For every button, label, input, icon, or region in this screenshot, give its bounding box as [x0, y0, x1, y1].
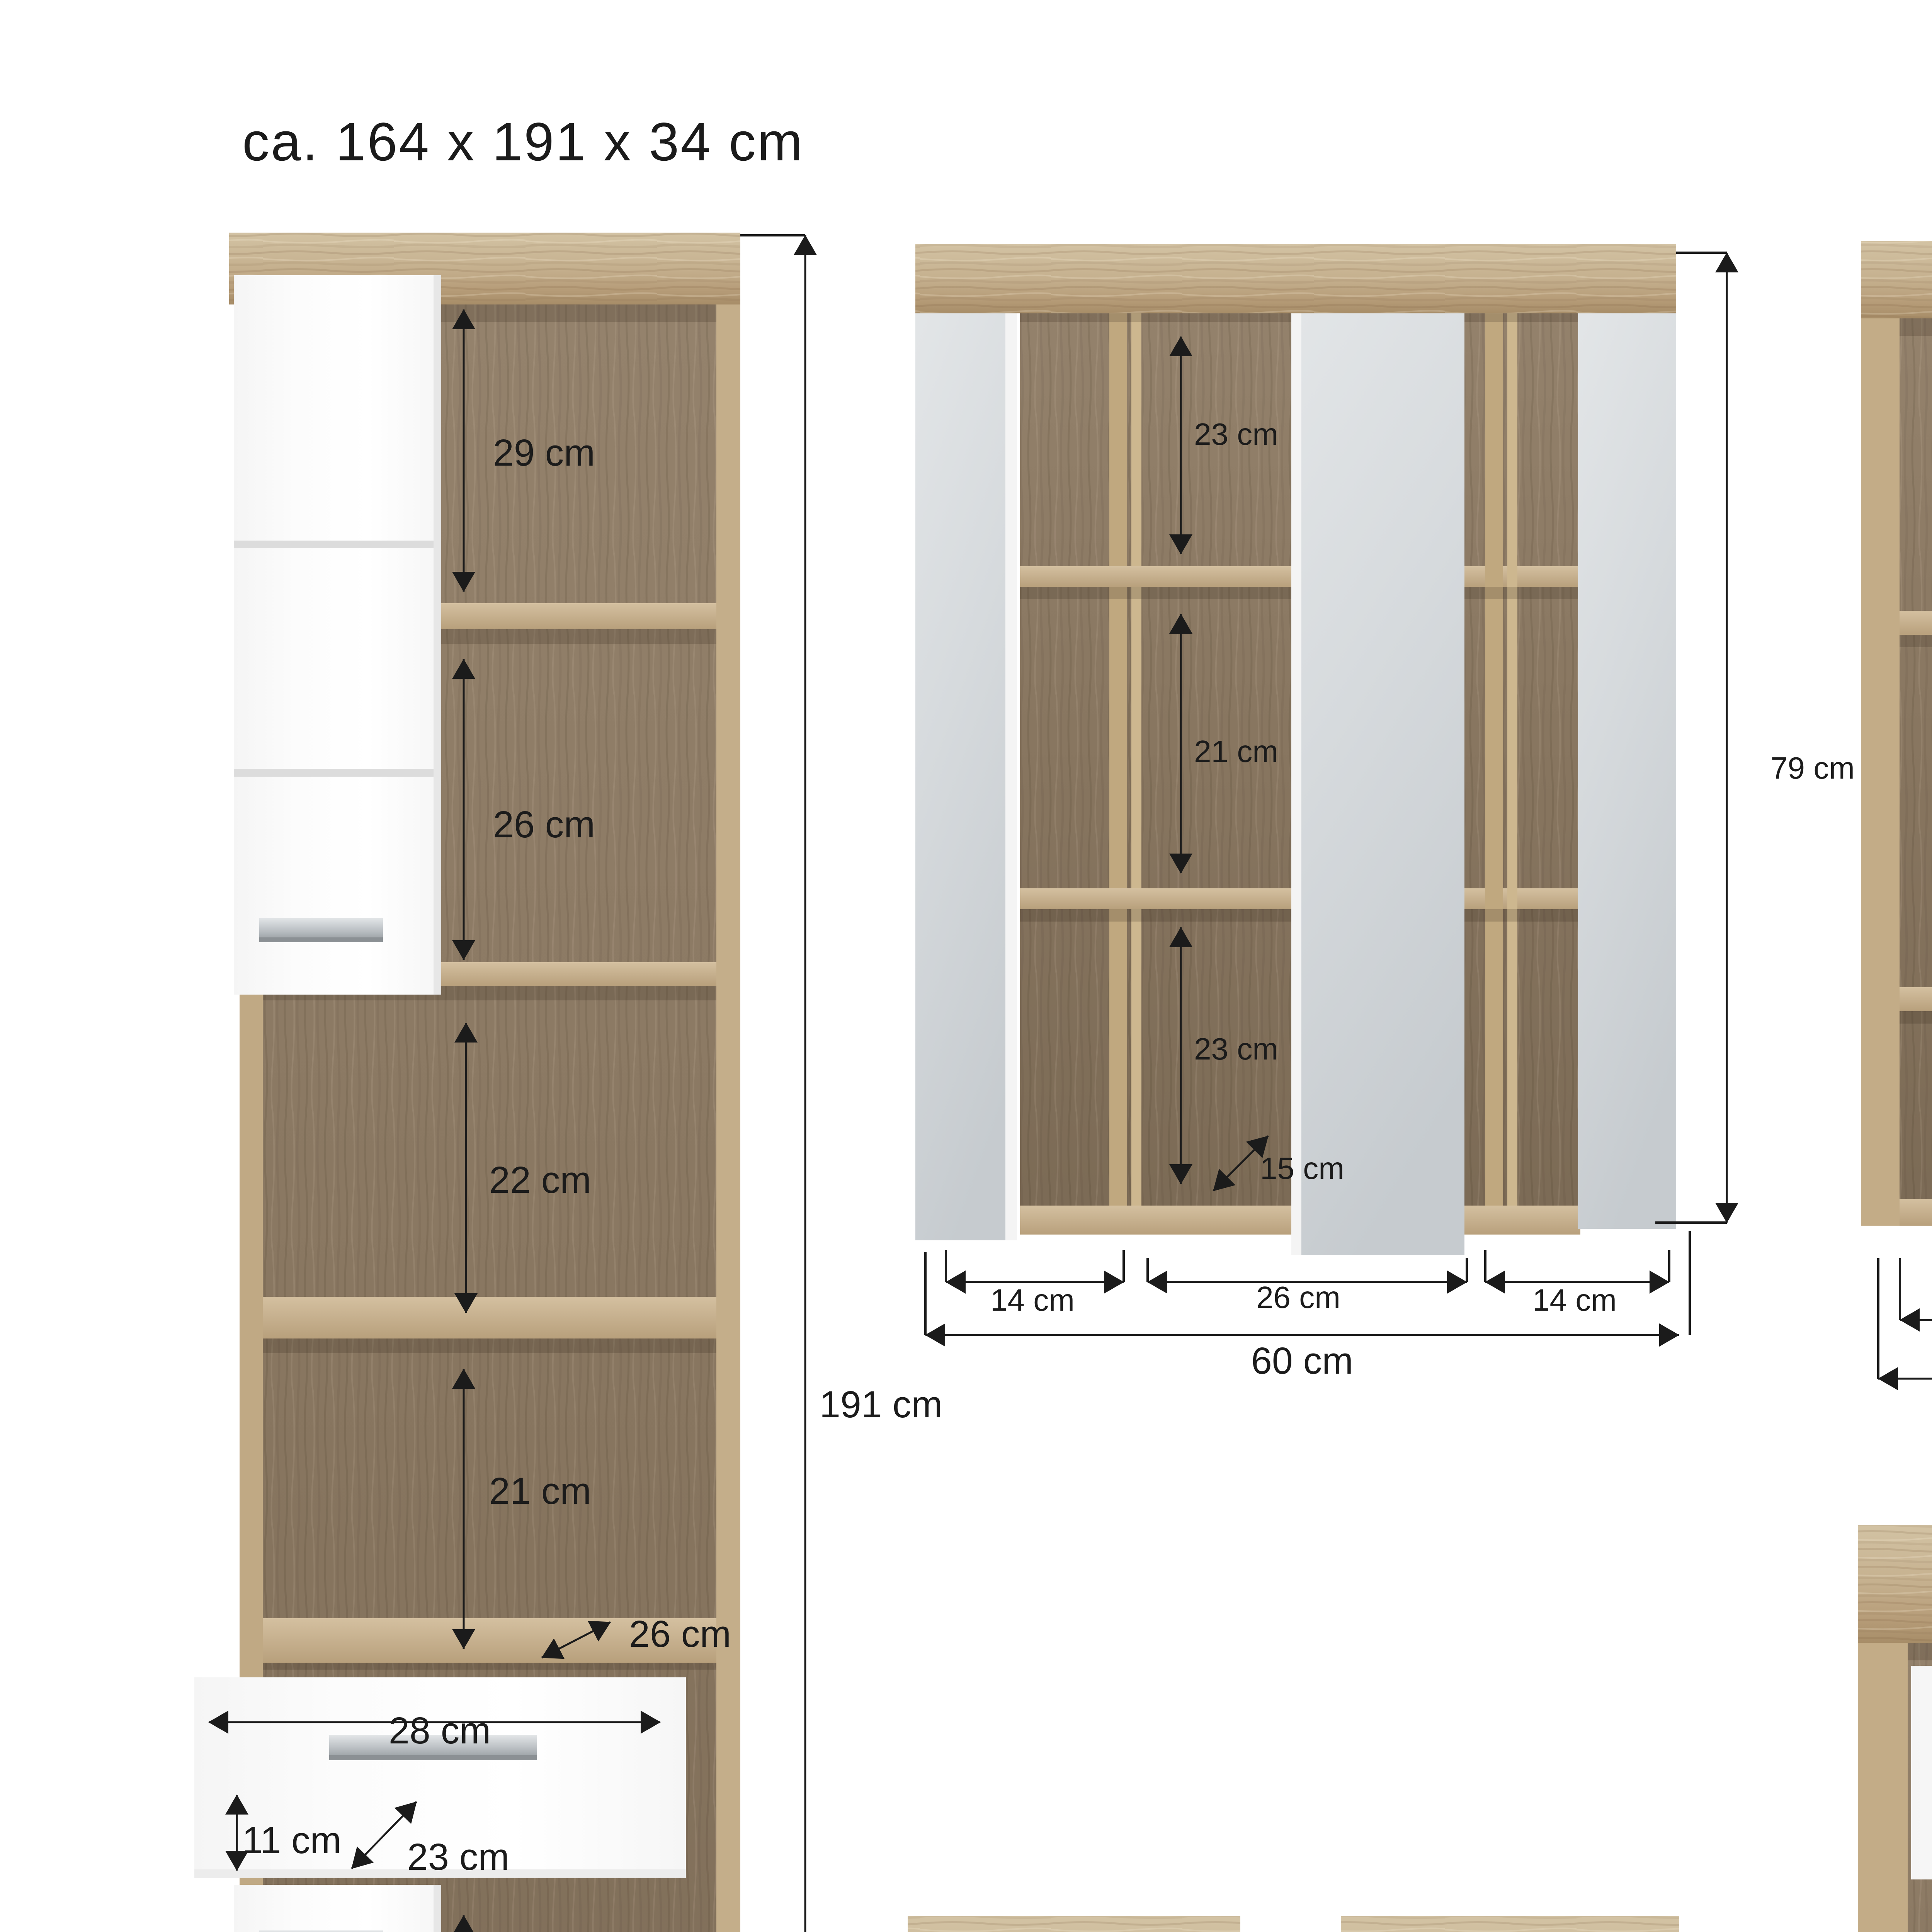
- svg-text:26 cm: 26 cm: [1256, 1280, 1340, 1315]
- svg-text:14 cm: 14 cm: [1532, 1283, 1617, 1317]
- svg-text:26 cm: 26 cm: [629, 1613, 731, 1655]
- svg-text:28 cm: 28 cm: [389, 1709, 491, 1752]
- svg-text:23 cm: 23 cm: [1194, 417, 1278, 451]
- svg-text:79 cm: 79 cm: [1770, 751, 1855, 785]
- svg-text:21 cm: 21 cm: [1194, 734, 1278, 769]
- svg-text:23 cm: 23 cm: [1194, 1032, 1278, 1066]
- svg-text:191 cm: 191 cm: [820, 1383, 942, 1425]
- svg-text:15 cm: 15 cm: [1260, 1151, 1344, 1185]
- svg-text:26 cm: 26 cm: [493, 803, 595, 845]
- svg-text:23 cm: 23 cm: [407, 1836, 509, 1878]
- svg-text:21 cm: 21 cm: [489, 1470, 591, 1512]
- svg-text:29 cm: 29 cm: [493, 432, 595, 474]
- svg-text:22 cm: 22 cm: [489, 1159, 591, 1201]
- svg-text:11 cm: 11 cm: [242, 1819, 342, 1861]
- svg-text:60 cm: 60 cm: [1251, 1340, 1353, 1382]
- svg-text:ca. 164 x 191 x 34 cm: ca. 164 x 191 x 34 cm: [242, 111, 804, 172]
- svg-text:14 cm: 14 cm: [990, 1283, 1075, 1317]
